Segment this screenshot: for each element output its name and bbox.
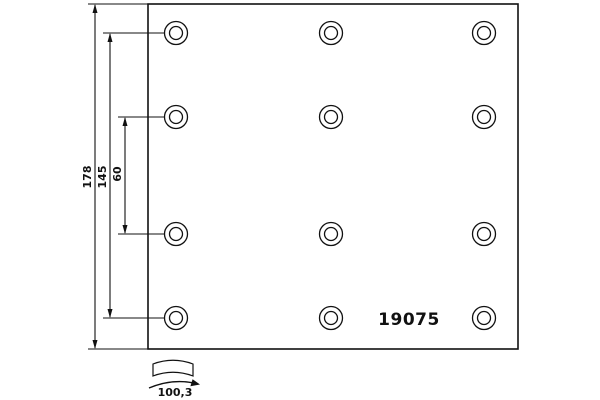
curved-section-band (153, 360, 193, 376)
brake-lining-drawing: 178 145 60 19075 100,3 (0, 0, 600, 400)
dimension-middle-rows-gap: 60 (111, 117, 128, 234)
arrowhead-down-icon (93, 340, 98, 349)
arc-width-label: 100,3 (158, 386, 193, 399)
arrowhead-up-icon (108, 33, 113, 42)
arrowhead-up-icon (123, 117, 128, 126)
dimension-label-145: 145 (96, 166, 109, 189)
dimension-label-178: 178 (81, 166, 94, 189)
part-number-label: 19075 (378, 310, 440, 330)
technical-drawing-canvas: 178 145 60 19075 100,3 (0, 0, 600, 400)
arrowhead-down-icon (123, 225, 128, 234)
arrowhead-up-icon (93, 4, 98, 13)
arrowhead-down-icon (108, 309, 113, 318)
lining-plate-outline (148, 4, 518, 349)
curvature-symbol: 100,3 (149, 360, 200, 399)
dimension-label-60: 60 (111, 166, 124, 182)
